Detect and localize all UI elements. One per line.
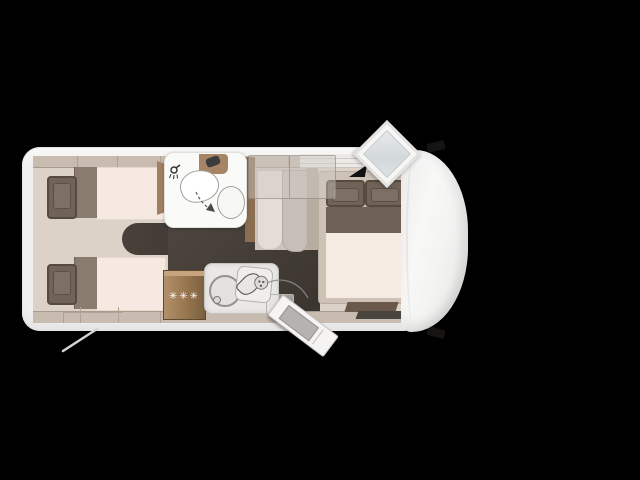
single-bed-bottom-mattress	[96, 257, 166, 311]
support-leg	[63, 329, 97, 351]
single-bed-top-headboard	[74, 167, 97, 218]
double-bed-pillow-left	[326, 180, 365, 207]
burner-dots	[258, 280, 260, 282]
freezer-star-rating: ✳✳✳	[164, 291, 205, 302]
double-bed-duvet	[326, 207, 402, 233]
pillow-fold	[332, 188, 359, 202]
underbed-divider	[118, 307, 119, 318]
wall-divider	[63, 312, 64, 323]
bed-foot-step	[356, 311, 408, 319]
single-bed-top-pillow	[47, 176, 77, 219]
curtain-left	[257, 170, 283, 250]
wall-divider	[160, 312, 161, 323]
curtain-right	[282, 170, 308, 252]
floorplan-canvas: ✳✳✳	[0, 0, 640, 480]
sink-tap	[213, 296, 221, 304]
fridge-top-edge	[164, 271, 205, 276]
wall-divider	[288, 156, 289, 167]
skylight-glass	[363, 130, 411, 178]
burner	[254, 275, 269, 290]
single-bed-top-mattress	[96, 167, 166, 220]
wall-divider	[117, 156, 118, 167]
side-mirror-bottom	[426, 326, 446, 339]
pillow-fold	[53, 183, 71, 209]
cab-seam	[406, 158, 420, 324]
underbed-divider	[80, 307, 81, 318]
floor-corridor	[122, 223, 170, 255]
side-mirror-top	[426, 140, 446, 153]
fridge-cabinet: ✳✳✳	[163, 270, 206, 320]
single-bed-bottom-pillow	[47, 264, 77, 305]
cooktop	[234, 265, 273, 304]
pillow-fold	[53, 271, 71, 295]
underbed-shelf-line	[63, 312, 123, 313]
toilet	[217, 186, 245, 219]
shower-head-icon	[167, 163, 185, 185]
pillow-fold	[371, 188, 399, 202]
single-bed-bottom-headboard	[74, 257, 97, 309]
double-bed-mattress	[326, 233, 402, 298]
wall-divider	[77, 156, 78, 167]
